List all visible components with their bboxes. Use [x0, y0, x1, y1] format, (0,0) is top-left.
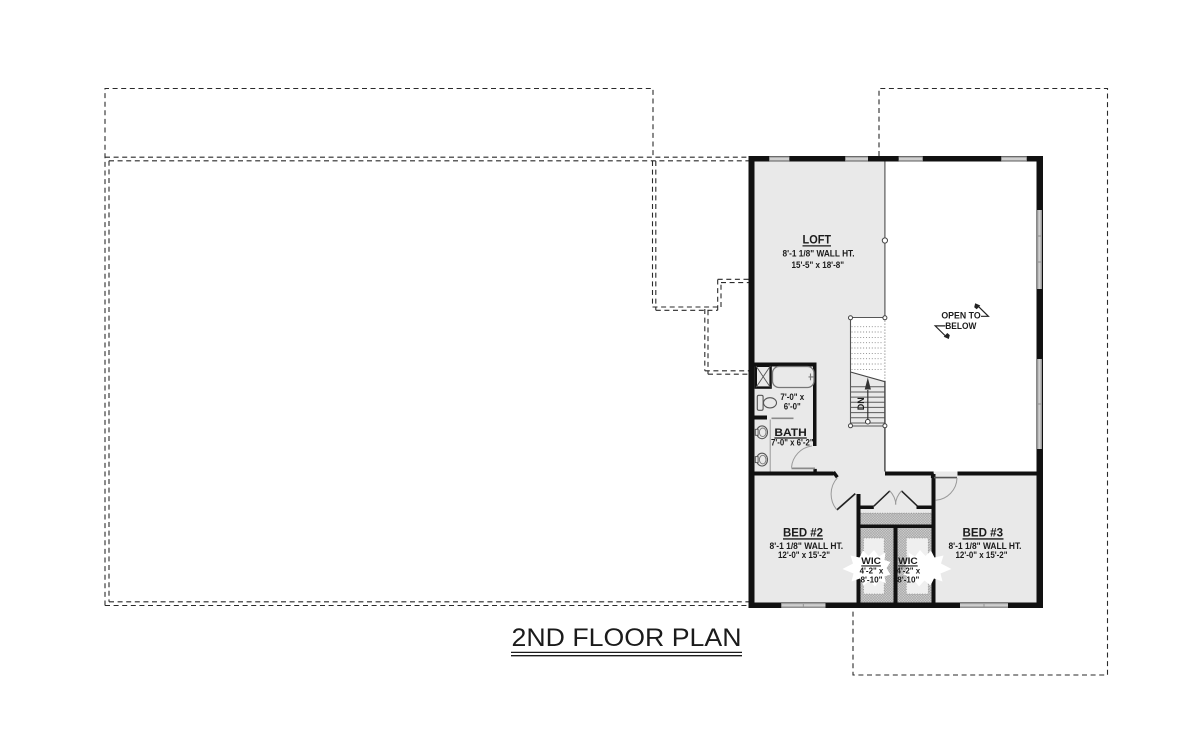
svg-text:4'-2" x: 4'-2" x	[896, 566, 920, 575]
svg-text:12'-0" x 15'-2": 12'-0" x 15'-2"	[956, 550, 1008, 560]
svg-text:8'-1 1/8" WALL HT.: 8'-1 1/8" WALL HT.	[783, 248, 855, 258]
svg-text:15'-5" x 18'-8": 15'-5" x 18'-8"	[792, 260, 845, 270]
svg-text:6'-0": 6'-0"	[784, 401, 801, 411]
svg-text:OPEN TO: OPEN TO	[941, 311, 980, 321]
svg-text:8'-10": 8'-10"	[897, 575, 919, 584]
svg-text:2ND FLOOR PLAN: 2ND FLOOR PLAN	[512, 624, 742, 652]
svg-text:4'-2" x: 4'-2" x	[860, 566, 884, 575]
svg-text:DN: DN	[856, 397, 866, 410]
svg-text:12'-0" x 15'-2": 12'-0" x 15'-2"	[778, 550, 830, 560]
svg-text:LOFT: LOFT	[803, 235, 832, 247]
svg-text:8'-10": 8'-10"	[860, 575, 882, 584]
svg-text:WIC: WIC	[898, 556, 918, 566]
svg-text:BELOW: BELOW	[945, 321, 976, 331]
svg-text:BED #2: BED #2	[783, 527, 823, 539]
svg-text:BED #3: BED #3	[963, 527, 1004, 539]
svg-text:7'-0" x 6'-2": 7'-0" x 6'-2"	[771, 437, 814, 447]
svg-text:WIC: WIC	[861, 556, 881, 566]
